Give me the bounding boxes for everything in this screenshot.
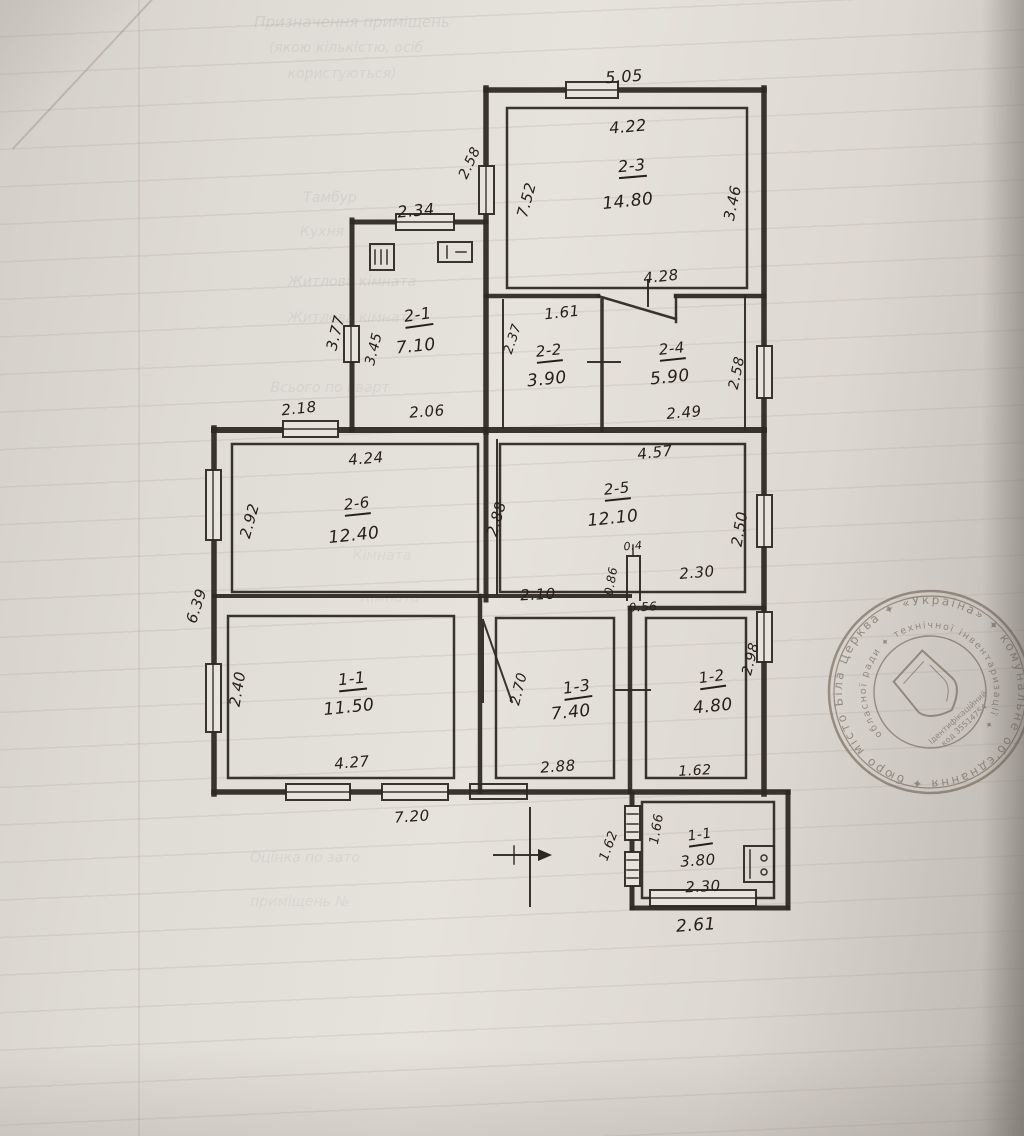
scanned-floorplan-page: Призначення приміщень(якою кількістю, ос… <box>0 0 1024 1136</box>
room-2-2-area: 3.90 <box>526 369 567 390</box>
boiler-dial-2 <box>761 869 767 875</box>
dim-1-3-bottom-2-88: 2.88 <box>540 758 576 775</box>
dim-2-3-bottom-4-28: 4.28 <box>643 268 680 287</box>
dim-annex2-bottom-2-30: 2.30 <box>685 879 721 896</box>
room-1-3-number: 1-3 <box>562 677 592 701</box>
page-right-edge-shadow <box>982 0 1024 1136</box>
room-2-2-number: 2-2 <box>535 342 563 364</box>
dim-2-1-top-2-34: 2.34 <box>397 201 436 220</box>
room-2-6-number: 2-6 <box>343 495 371 517</box>
room-2-4-number: 2-4 <box>658 340 686 362</box>
dim-1-1-bottom-4-27: 4.27 <box>334 754 371 772</box>
dim-2-5-top-4-57: 4.57 <box>637 444 674 463</box>
stamp-shield-detail <box>902 659 957 715</box>
dim-mid-0-56: 0.56 <box>628 600 657 613</box>
room-1-2-area: 4.80 <box>692 696 733 717</box>
room-1-1-number: 1-1 <box>337 670 367 693</box>
boiler-icon <box>744 846 774 882</box>
dim-2-6-top-4-24: 4.24 <box>348 450 385 468</box>
door-leaf-1-3 <box>483 620 512 702</box>
entrance-arrow-head <box>538 849 552 861</box>
bottom-shading <box>0 1046 1024 1136</box>
sink-detail <box>447 246 466 258</box>
dim-2-4-bottom-2-49: 2.49 <box>666 404 703 422</box>
dim-outer-bottom-7-20: 7.20 <box>394 808 430 825</box>
sink-icon <box>438 242 472 262</box>
dim-mid-2-10: 2.10 <box>520 587 556 604</box>
dim-annex2-out-2-61: 2.61 <box>676 916 717 936</box>
room-1-2-number: 1-2 <box>698 668 726 690</box>
dim-1-2-bottom-1-62: 1.62 <box>678 763 712 779</box>
stove-icon <box>370 244 394 270</box>
stove-burners <box>375 250 387 264</box>
room-2-1-area: 7.10 <box>395 336 436 357</box>
dim-2-2-top-1-61: 1.61 <box>544 304 581 323</box>
room-2-4-area: 5.90 <box>649 367 690 388</box>
dim-2-3-width: 4.22 <box>609 117 648 136</box>
room-2-3-number: 2-3 <box>617 157 646 179</box>
dim-mid-2-30: 2.30 <box>679 564 716 582</box>
vent-annex2-left-b <box>625 852 640 886</box>
room-1-3-area: 7.40 <box>550 702 591 723</box>
dim-band-2-06: 2.06 <box>409 403 445 420</box>
vent-annex2-left-a <box>625 806 640 840</box>
room-annex-number: 1-1 <box>687 826 714 847</box>
room-2-5-number: 2-5 <box>603 480 631 502</box>
door-diagonal-2-4 <box>598 296 676 322</box>
room-annex-area: 3.80 <box>680 852 716 869</box>
dim-band-2-18: 2.18 <box>281 400 318 419</box>
dim-stub-0-4: 0.4 <box>623 540 643 553</box>
room-2-1-number: 2-1 <box>403 305 433 329</box>
boiler-dial-1 <box>761 855 767 861</box>
wall-stub <box>627 556 640 600</box>
dim-top-5-05: 5.05 <box>605 68 644 87</box>
